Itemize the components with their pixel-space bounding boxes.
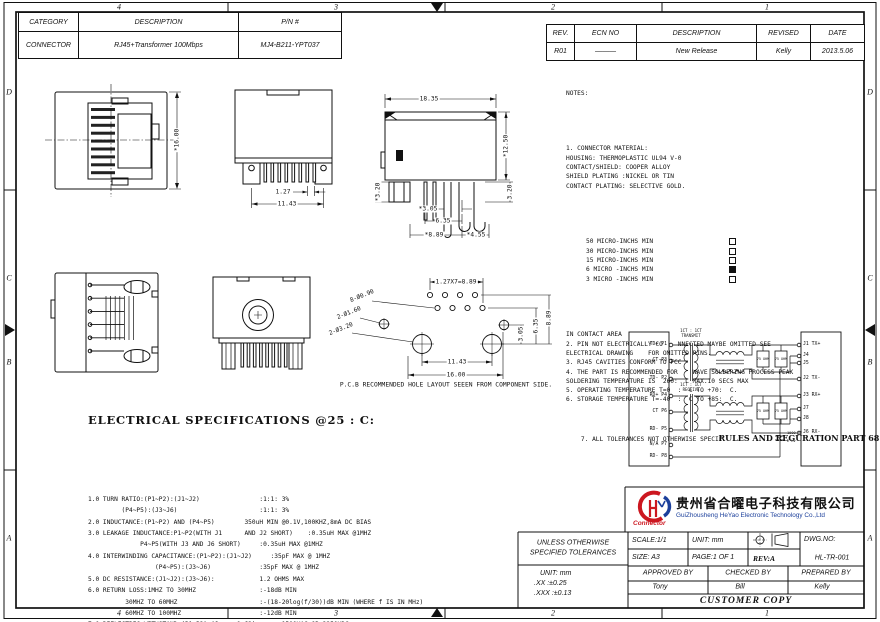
- spec-line: 4.0 INTERWINDING CAPACITANCE:(P1~P2):(J1…: [88, 551, 423, 562]
- rev-table-header-cell: ECN NO: [575, 25, 637, 42]
- projection-symbol-icon: [753, 533, 788, 547]
- electrical-specs-lines: 1.0 TURN RATIO:(P1~P2):(J1~J2) :1:1: 3% …: [88, 460, 423, 622]
- part-number-table: CATEGORYDESCRIPTIONP/N # CONNECTORRJ45+T…: [18, 12, 342, 59]
- zone-row-label: D: [6, 88, 12, 97]
- zone-col-label: 1: [765, 3, 769, 12]
- plating-option-row: 6 MICRO -INCHS MIN: [586, 265, 736, 274]
- rev-table-header-cell: DATE: [811, 25, 864, 42]
- company-name-cn: 贵州省合曜电子科技有限公司: [676, 493, 855, 512]
- dim-pcb-pitch-row: 1.27X7=8.89: [435, 279, 478, 286]
- spec-line: 2.0 INDUCTANCE:(P1~P2) AND (P4~P5) 350uH…: [88, 517, 423, 528]
- base-view: [213, 277, 310, 369]
- schematic-pin-j2: J2 TX-: [803, 376, 820, 381]
- dim-center: 6.35: [435, 218, 452, 225]
- rev-table-cell: Kelly: [757, 43, 811, 60]
- rev-table-cell: ———: [575, 43, 637, 60]
- checked-by-name: Bill: [735, 584, 744, 591]
- part-table-header-cell: DESCRIPTION: [79, 13, 239, 31]
- rev-table-cell: New Release: [637, 43, 757, 60]
- note-line: CONTACT/SHIELD: COOPER ALLOY: [566, 163, 878, 172]
- logo-word: Connector: [633, 520, 666, 527]
- rev-table-data-row: R01———New ReleaseKelly2013.5.06: [547, 43, 864, 60]
- rev-table-cell: 2013.5.06: [811, 43, 864, 60]
- electrical-specifications: ELECTRICAL SPECIFICATIONS @25 : C: 1.0 T…: [88, 390, 423, 622]
- dim-overall: 16.00: [446, 372, 467, 379]
- spec-line: 30MHZ TO 60MHZ :-(18-20log(f/30))dB MIN …: [88, 597, 423, 608]
- spec-line: 6.0 RETURN LOSS:1MHZ TO 30MHZ :-18dB MIN: [88, 585, 423, 596]
- plating-options: 50 MICRO-INCHS MIN 30 MICRO-INCHS MIN 15…: [566, 209, 878, 283]
- dim-pcb-v-row1: 8.89: [546, 310, 553, 327]
- schematic-pin-p1: TD+ P1: [630, 342, 667, 347]
- spec-line: (P4~P5):(J3~J6) :1:1: 3%: [88, 505, 423, 516]
- resistor-label: 75 OHM: [775, 357, 787, 361]
- note-line: 6. STORAGE TEMPERATURE T=-40 : C TO +85:…: [566, 395, 878, 404]
- prepared-by-label: PREPARED BY: [801, 570, 850, 577]
- dim-side-width: 18.35: [419, 96, 440, 103]
- note-line: 4. THE PART IS RECOMMENDED FOR WAVE SOLD…: [566, 368, 878, 377]
- dim-peg: *3.05: [418, 206, 439, 213]
- zone-row-label: A: [868, 534, 873, 543]
- zone-row-label: A: [7, 534, 12, 543]
- resistor-label: 75 OHM: [757, 409, 769, 413]
- dwg-no-value: HL-TR-001: [815, 555, 850, 562]
- zone-col-label: 4: [117, 3, 121, 12]
- tolerance-unit: UNIT: mm: [540, 570, 571, 577]
- schematic-pin-p7: N/A P7: [630, 442, 667, 447]
- plating-checkbox: [729, 266, 736, 273]
- approved-by-label: APPROVED BY: [643, 570, 693, 577]
- plating-checkbox: [729, 257, 736, 264]
- note-seven: 7. ALL TOLERANCES NOT OTHERWISE SPECIFRU…: [566, 423, 878, 432]
- note-line: HOUSING: THERMOPLASTIC UL94 V-0: [566, 154, 878, 163]
- prepared-by-name: Kelly: [814, 584, 829, 591]
- tolerance-xxx: .XXX :±0.13: [534, 590, 571, 597]
- rev-table-header-cell: REVISED: [757, 25, 811, 42]
- plating-option-row: 3 MICRO -INCHS MIN: [586, 275, 736, 284]
- resistor-label: 75 OHM: [775, 409, 787, 413]
- part-table-cell: MJ4-B211-YPT037: [239, 32, 341, 58]
- spec-line: (P4~P5):(J3~J6) :35pF MAX @ 1MHZ: [88, 562, 423, 573]
- rev-table-header-cell: REV.: [547, 25, 575, 42]
- schematic-pin-j5: J5: [803, 361, 809, 366]
- pcb-caption: P.C.B RECOMMENDED HOLE LAYOUT SEEEN FROM…: [340, 382, 552, 389]
- notes-material-lines: 1. CONNECTOR MATERIAL:HOUSING: THERMOPLA…: [566, 116, 878, 190]
- part-table-header-cell: P/N #: [239, 13, 341, 31]
- note-line: 2. PIN NOT ELECTRICALLY CO NNECTED MAYBE…: [566, 340, 878, 349]
- customer-copy-label: CUSTOMER COPY: [700, 596, 792, 606]
- capacitor-value: 1000 pF: [787, 431, 802, 435]
- part-table-header-cell: CATEGORY: [19, 13, 79, 31]
- schematic-pin-j7: J7: [803, 406, 809, 411]
- rev-table-cell: R01: [547, 43, 575, 60]
- checked-by-label: CHECKED BY: [725, 570, 771, 577]
- dim-pin-span: 11.43: [277, 201, 298, 208]
- note-line: IN CONTACT AREA: [566, 330, 878, 339]
- rev-value: REV:A: [753, 554, 775, 563]
- electrical-specs-title: ELECTRICAL SPECIFICATIONS @25 : C:: [88, 413, 423, 427]
- part-table-cell: RJ45+Transformer 100Mbps: [79, 32, 239, 58]
- schematic-pin-j8: J8: [803, 416, 809, 421]
- dim-side-height: *12.50: [503, 134, 510, 158]
- spec-line: 60MHZ TO 100MHZ :-12dB MIN: [88, 608, 423, 619]
- schematic-pin-j4: J4: [803, 353, 809, 358]
- schematic-pin-p3: CT P3: [630, 358, 667, 363]
- zone-col-label: 1: [765, 609, 769, 618]
- schematic-pin-j1: J1 TX+: [803, 342, 820, 347]
- zone-col-label: 2: [551, 3, 555, 12]
- company-logo-icon: [640, 493, 670, 521]
- note-line: 5. OPERATING TEMPERATURE T=0 : C TO +70:…: [566, 386, 878, 395]
- dim-pcb-v-row2: 6.35: [533, 318, 540, 335]
- note-line: 1. CONNECTOR MATERIAL:: [566, 144, 878, 153]
- receive-transformer-label: 1CT : 1CTRECEIVE: [680, 383, 702, 392]
- part-table-data-row: CONNECTORRJ45+Transformer 100MbpsMJ4-B21…: [19, 32, 341, 58]
- spec-line: 1.0 TURN RATIO:(P1~P2):(J1~J2) :1:1: 3%: [88, 494, 423, 505]
- schematic-pin-p4: RD+ P4: [630, 393, 667, 398]
- plating-checkbox: [729, 238, 736, 245]
- plating-option-label: 15 MICRO-INCHS MIN: [586, 256, 653, 265]
- notes-title: NOTES:: [566, 89, 878, 98]
- part-table-cell: CONNECTOR: [19, 32, 79, 58]
- schematic-pin-p6: CT P6: [630, 409, 667, 414]
- plating-option-row: 30 MICRO-INCHS MIN: [586, 247, 736, 256]
- dwg-no-label: DWG.NO:: [804, 536, 836, 543]
- zone-col-label: 3: [334, 3, 338, 12]
- plating-option-label: 6 MICRO -INCHS MIN: [586, 265, 653, 274]
- plating-option-label: 30 MICRO-INCHS MIN: [586, 247, 653, 256]
- zone-row-label: C: [6, 274, 11, 283]
- size-value: SIZE: A3: [632, 554, 660, 561]
- tolerance-xx: .XX :±0.25: [534, 580, 567, 587]
- spec-line: 5.0 DC RESISTANCE:(J1~J2):(J3~J6): 1.2 O…: [88, 574, 423, 585]
- rev-table-header-row: REV.ECN NODESCRIPTIONREVISEDDATE: [547, 25, 864, 43]
- scale-value: SCALE:1/1: [632, 537, 667, 544]
- plating-option-label: 50 MICRO-INCHS MIN: [586, 237, 653, 246]
- transmit-transformer-label: 1CT : 1CTTRANSMIT: [680, 329, 702, 338]
- dim-shield-right: 3.20: [507, 184, 514, 201]
- spec-line: 3.0 LEAKAGE INDUCTANCE:P1~P2(WITH J1 AND…: [88, 528, 423, 539]
- schematic-pin-j3: J3 RX+: [803, 393, 820, 398]
- zone-row-label: B: [7, 358, 12, 367]
- dim-right-span: *4.55: [466, 232, 487, 239]
- zone-col-label: 2: [551, 609, 555, 618]
- schematic-pin-p2: TD- P2: [630, 376, 667, 381]
- schematic-pin-p5: RD- P5: [630, 427, 667, 432]
- pcb-layout: [379, 292, 508, 353]
- part-table-header-row: CATEGORYDESCRIPTIONP/N #: [19, 13, 341, 32]
- schematic-pin-p8: RD- P8: [630, 454, 667, 459]
- approved-by-name: Tony: [653, 584, 668, 591]
- notes-general-lines: IN CONTACT AREA2. PIN NOT ELECTRICALLY C…: [566, 302, 878, 404]
- revision-table: REV.ECN NODESCRIPTIONREVISEDDATE R01———N…: [546, 24, 865, 61]
- dim-pcb-v-shield: 3.05: [518, 326, 525, 343]
- notes-block: NOTES: 1. CONNECTOR MATERIAL:HOUSING: TH…: [566, 70, 878, 442]
- front-view-contacts: [91, 108, 115, 174]
- dim-left-span: *8.89: [424, 232, 445, 239]
- page-value: PAGE:1 OF 1: [692, 554, 734, 561]
- dim-post-span: 11.43: [447, 359, 468, 366]
- plating-checkbox: [729, 248, 736, 255]
- note-line: ELECTRICAL DRAWING FOR OMITTED PINS.: [566, 349, 878, 358]
- spec-line: P4~P5(WITH J3 AND J6 SHORT) :0.35uH MAX …: [88, 539, 423, 550]
- bottom-view: [235, 90, 332, 184]
- plating-option-row: 15 MICRO-INCHS MIN: [586, 256, 736, 265]
- plating-checkbox: [729, 276, 736, 283]
- plating-option-label: 3 MICRO -INCHS MIN: [586, 275, 653, 284]
- top-view: [51, 273, 158, 372]
- rev-table-header-cell: DESCRIPTION: [637, 25, 757, 42]
- resistor-label: 75 OHM: [757, 357, 769, 361]
- dim-pin-pitch: 1.27: [275, 189, 292, 196]
- dim-shield-left: *3.20: [375, 182, 382, 203]
- tolerance-header-line2: SPECIFIED TOLERANCES: [530, 550, 616, 557]
- unit-value: UNIT: mm: [692, 537, 723, 544]
- note-line: CONTACT PLATING: SELECTIVE GOLD.: [566, 182, 878, 191]
- company-name-en: GuiZhousheng HeYao Electronic Technology…: [676, 512, 825, 519]
- capacitor-rating: 2 Kv: [787, 439, 796, 443]
- note-line: SHIELD PLATING :NICKEL OR TIN: [566, 172, 878, 181]
- schematic-pin-j6: J6 RX-: [803, 430, 820, 435]
- note-line: SOLDERING TEMPERATURE IS 260: C MAX.10 S…: [566, 377, 878, 386]
- tolerance-header-line1: UNLESS OTHERWISE: [537, 540, 609, 547]
- plating-option-row: 50 MICRO-INCHS MIN: [586, 237, 736, 246]
- dim-front-height: *16.00: [174, 128, 181, 152]
- note-line: 3. RJ45 CAVITIES CONFORM TO FCC: [566, 358, 878, 367]
- engineering-drawing-sheet: 4 3 2 1 4 3 2 1 D C B A D C B A CATEGORY…: [0, 0, 880, 622]
